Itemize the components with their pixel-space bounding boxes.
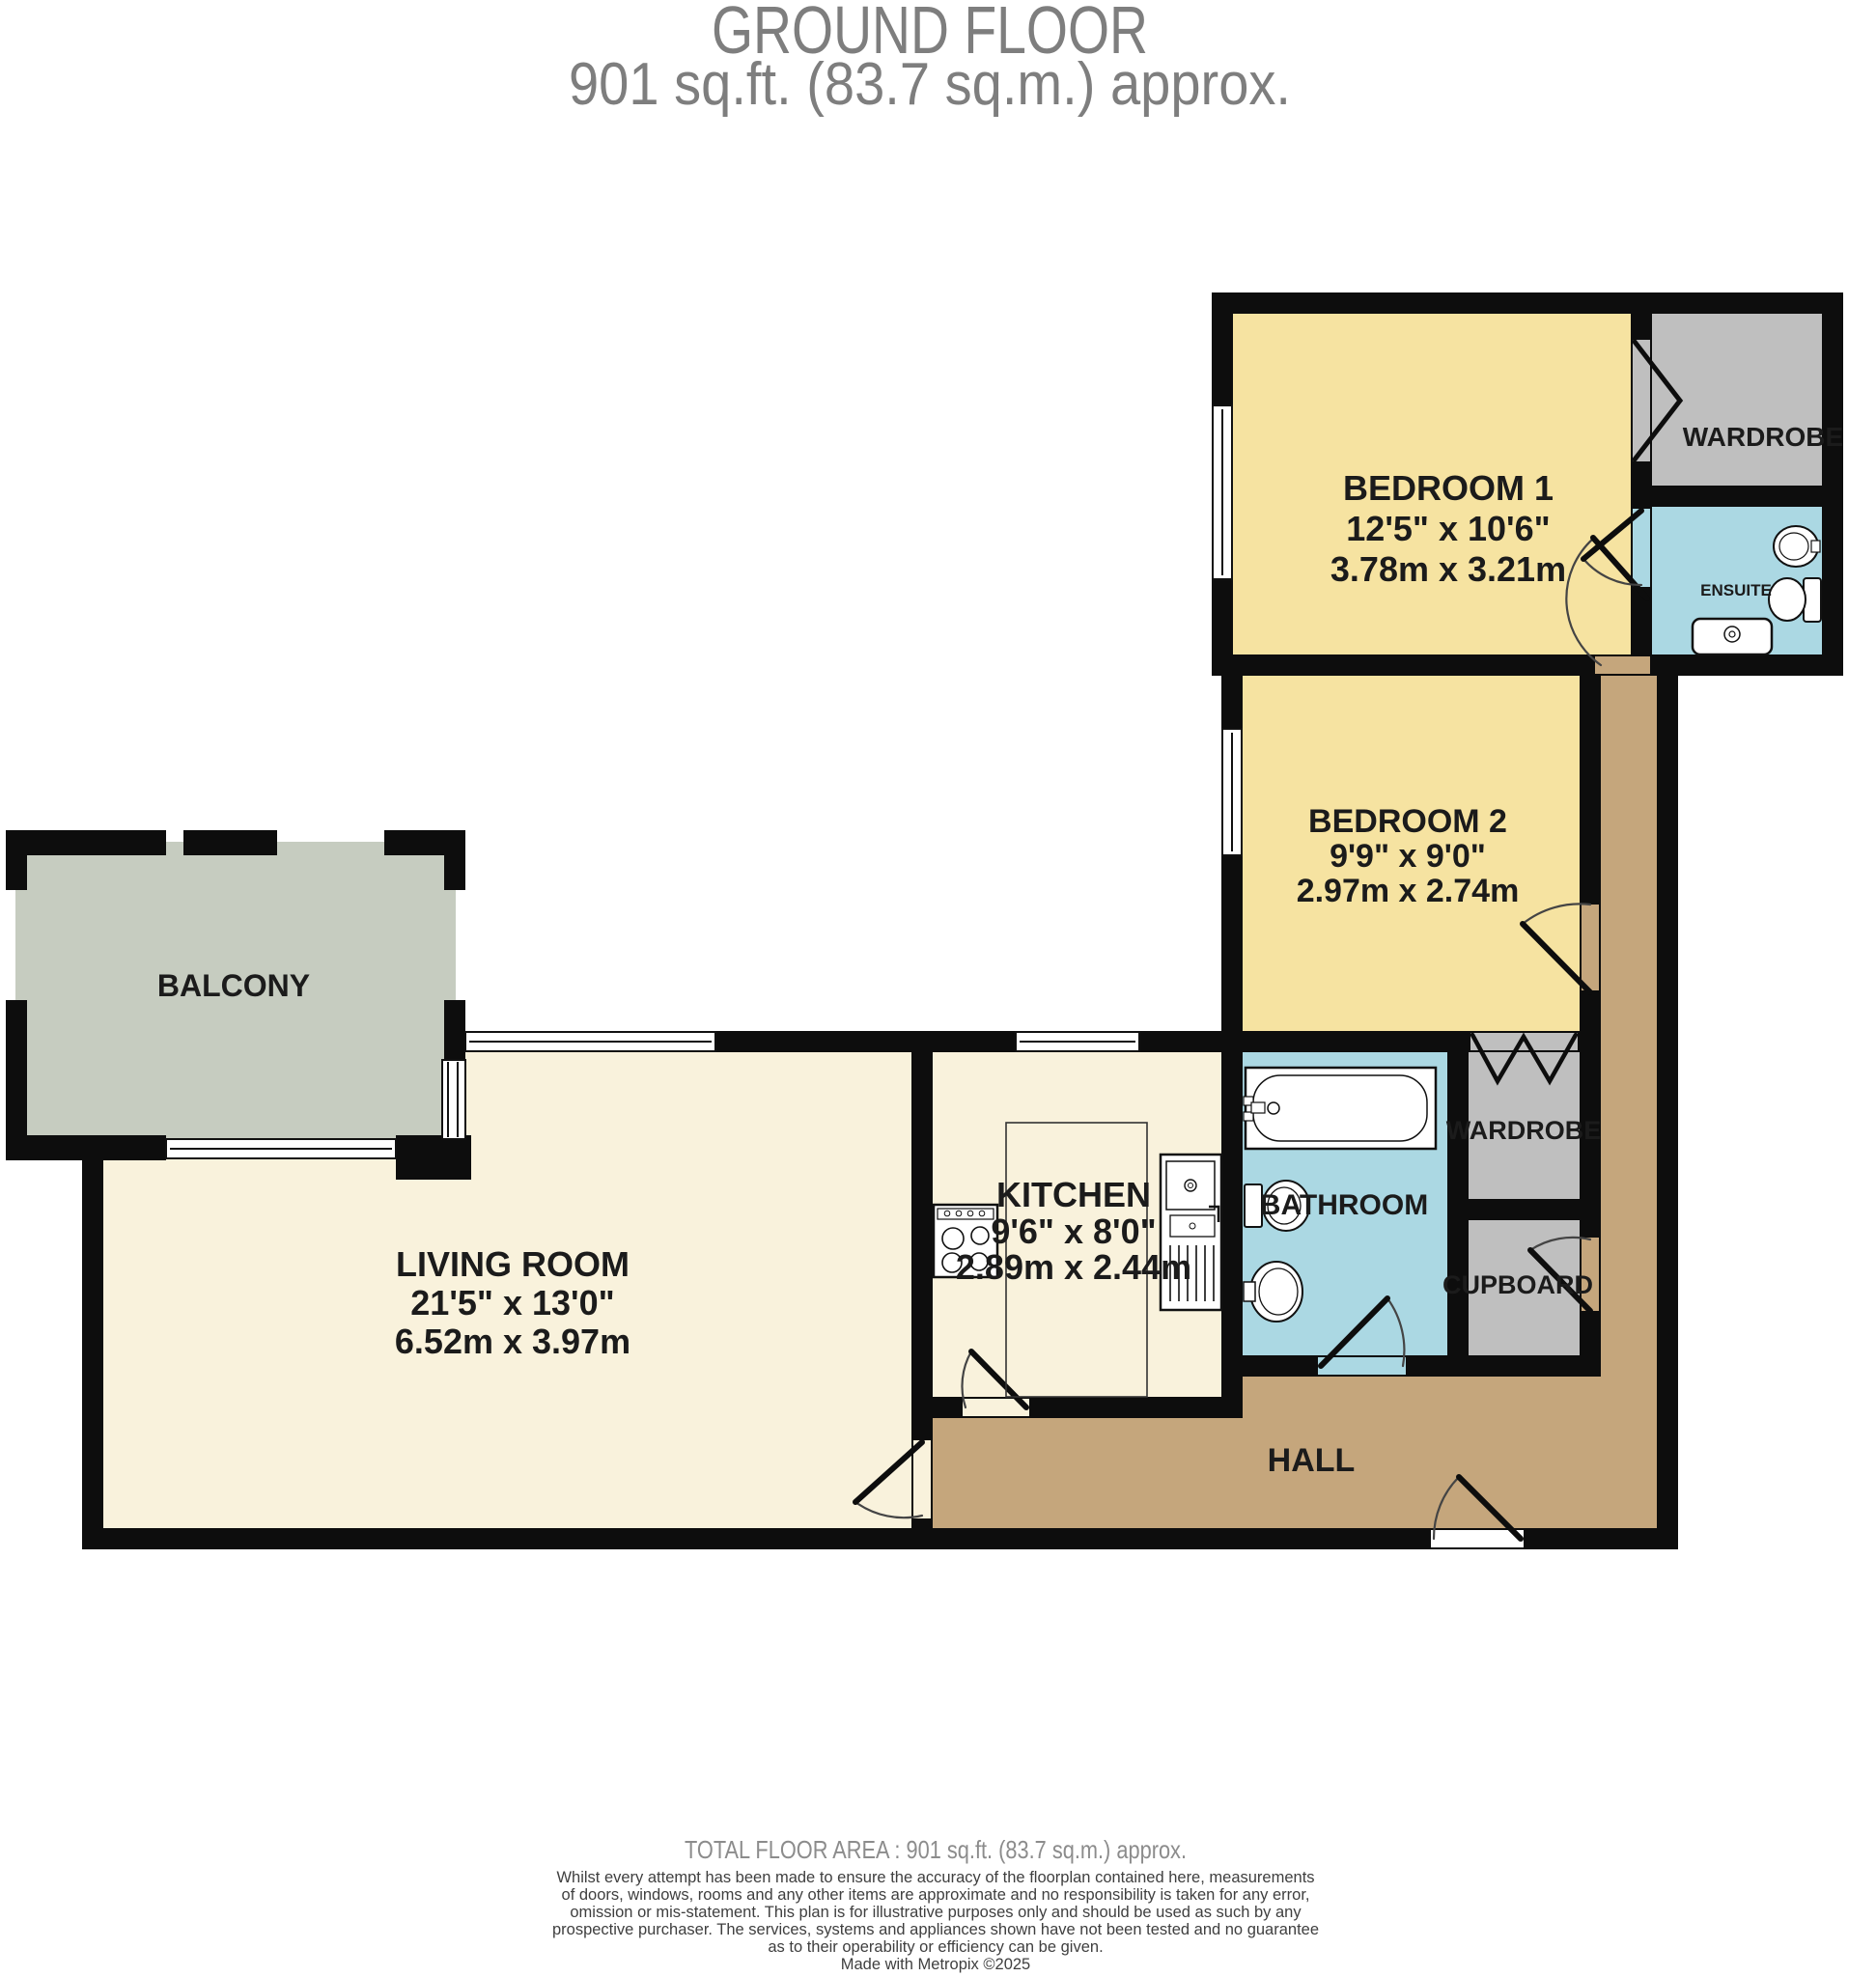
balcony-post bbox=[183, 830, 277, 855]
balcony-post bbox=[6, 830, 166, 855]
balcony-post bbox=[6, 830, 27, 890]
wall-living-top-corner bbox=[396, 1135, 471, 1180]
balcony-post bbox=[444, 1000, 465, 1062]
title-floor-area: 901 sq.ft. (83.7 sq.m.) approx. bbox=[569, 51, 1291, 118]
wall-kitchen-top bbox=[706, 1031, 1243, 1052]
kitchen-label: KITCHEN bbox=[996, 1175, 1151, 1214]
bedroom1-dims-metric: 3.78m x 3.21m bbox=[1330, 549, 1566, 589]
footer-total-area: TOTAL FLOOR AREA : 901 sq.ft. (83.7 sq.m… bbox=[685, 1835, 1187, 1864]
wall-bed1-bottom bbox=[1212, 654, 1843, 676]
shower-tray-icon bbox=[1693, 619, 1772, 654]
opening-bedroom1-entry bbox=[1595, 656, 1650, 674]
wall-wardrobe-ensuite-divider bbox=[1631, 486, 1843, 507]
living-room-label: LIVING ROOM bbox=[396, 1244, 630, 1284]
bedroom1-dims-imperial: 12'5" x 10'6" bbox=[1346, 509, 1550, 548]
bathroom-label: BATHROOM bbox=[1260, 1189, 1428, 1221]
balcony-label: BALCONY bbox=[157, 968, 310, 1003]
wall-hall-bottom bbox=[911, 1528, 1678, 1549]
cupboard-label: CUPBOARD bbox=[1442, 1270, 1593, 1299]
window-living-band bbox=[465, 1032, 715, 1051]
living-room-dims-imperial: 21'5" x 13'0" bbox=[410, 1283, 614, 1323]
bedroom2-dims-imperial: 9'9" x 9'0" bbox=[1330, 838, 1486, 875]
footer-disclaimer-line-2: of doors, windows, rooms and any other i… bbox=[562, 1886, 1310, 1904]
bedroom2-label: BEDROOM 2 bbox=[1308, 803, 1507, 840]
wall-top-block-right bbox=[1822, 292, 1843, 676]
window-bedroom1 bbox=[1213, 405, 1232, 579]
footer-credit: Made with Metropix ©2025 bbox=[841, 1956, 1031, 1973]
footer-disclaimer-line-4: prospective purchaser. The services, sys… bbox=[552, 1921, 1319, 1938]
wall-wardrobe2-cupboard-divider bbox=[1458, 1199, 1601, 1220]
wall-bathroom-bottom bbox=[1221, 1355, 1601, 1377]
balcony-sliding-door bbox=[442, 1060, 465, 1139]
kitchen-dims-metric: 2.89m x 2.44m bbox=[956, 1247, 1191, 1287]
floorplan-canvas: BEDROOM 1 12'5" x 10'6" 3.78m x 3.21m WA… bbox=[0, 0, 1876, 1977]
bathtub-icon bbox=[1244, 1068, 1436, 1149]
kitchen-dims-imperial: 9'6" x 8'0" bbox=[991, 1211, 1156, 1251]
bedroom1-label: BEDROOM 1 bbox=[1343, 468, 1554, 508]
footer-disclaimer-line-1: Whilst every attempt has been made to en… bbox=[556, 1869, 1314, 1886]
opening-living-hall bbox=[913, 1440, 931, 1518]
window-kitchen bbox=[1016, 1032, 1139, 1051]
wall-kitchen-bottom bbox=[911, 1397, 1243, 1418]
opening-front-entry bbox=[1431, 1530, 1524, 1547]
wardrobe1-floor bbox=[1641, 303, 1833, 496]
opening-bathroom bbox=[1318, 1357, 1406, 1375]
living-room-dims-metric: 6.52m x 3.97m bbox=[395, 1322, 630, 1361]
window-bedroom2 bbox=[1222, 729, 1242, 855]
opening-ensuite bbox=[1633, 509, 1650, 587]
ensuite-sink-icon bbox=[1774, 526, 1820, 567]
bedroom2-dims-metric: 2.97m x 2.74m bbox=[1297, 873, 1520, 909]
wall-living-left bbox=[82, 1138, 103, 1549]
window-balcony-living bbox=[166, 1139, 396, 1158]
wall-top-block-top bbox=[1212, 292, 1843, 314]
wall-living-bottom bbox=[82, 1528, 934, 1549]
footer-disclaimer-line-3: omission or mis-statement. This plan is … bbox=[570, 1904, 1302, 1921]
ensuite-toilet-icon bbox=[1769, 578, 1821, 622]
footer-disclaimer-line-5: as to their operability or efficiency ca… bbox=[768, 1938, 1103, 1956]
balcony-post bbox=[6, 1135, 166, 1160]
opening-bedroom2 bbox=[1582, 905, 1599, 990]
wardrobe2-label: WARDROBE bbox=[1446, 1116, 1602, 1145]
wardrobe1-label: WARDROBE bbox=[1683, 422, 1843, 452]
balcony-post bbox=[444, 830, 465, 890]
ensuite-label: ENSUITE bbox=[1700, 581, 1772, 599]
wall-hall-right bbox=[1657, 654, 1678, 1549]
hall-label: HALL bbox=[1268, 1442, 1356, 1479]
